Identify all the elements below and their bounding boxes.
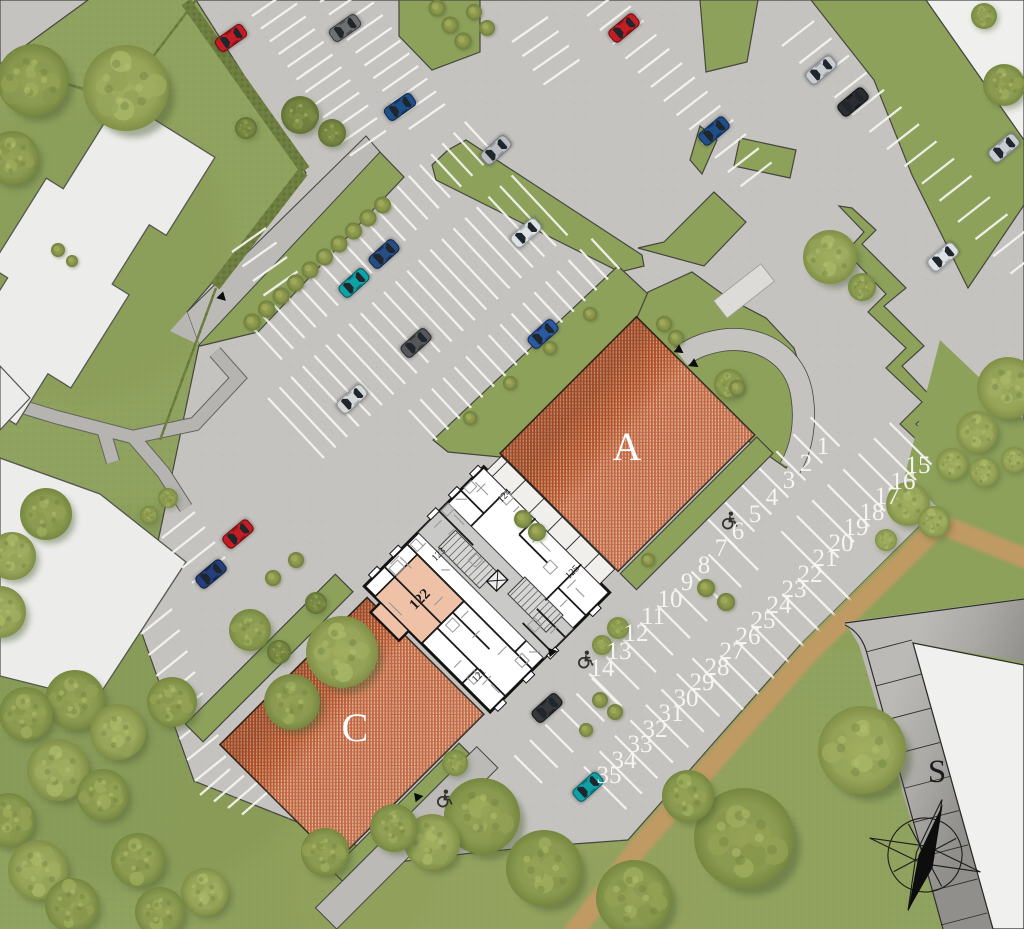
svg-text:1: 1: [817, 433, 830, 460]
svg-text:S: S: [928, 754, 946, 790]
svg-text:14: 14: [590, 655, 616, 682]
svg-text:C: C: [342, 705, 369, 750]
svg-text:2: 2: [800, 450, 813, 477]
svg-text:7: 7: [715, 535, 728, 562]
svg-text:5: 5: [749, 501, 762, 528]
svg-text:A: A: [613, 424, 642, 469]
svg-text:35: 35: [597, 762, 622, 789]
svg-text:3: 3: [783, 467, 796, 494]
svg-text:6: 6: [732, 518, 745, 545]
svg-text:4: 4: [766, 484, 779, 511]
svg-text:8: 8: [698, 552, 711, 579]
svg-text:9: 9: [681, 569, 694, 596]
